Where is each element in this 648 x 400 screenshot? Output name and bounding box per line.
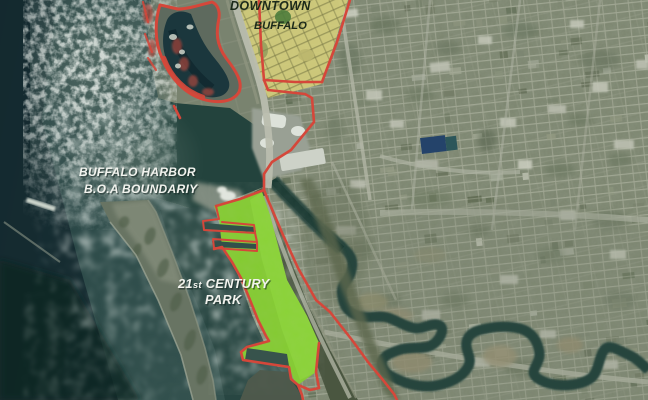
svg-text:B.O.A BOUNDARIY: B.O.A BOUNDARIY <box>84 182 198 196</box>
svg-text:BUFFALO HARBOR: BUFFALO HARBOR <box>79 165 196 179</box>
svg-text:DOWNTOWN: DOWNTOWN <box>230 0 311 13</box>
svg-text:BUFFALO: BUFFALO <box>254 20 307 32</box>
svg-text:PARK: PARK <box>205 292 243 307</box>
svg-text:21st CENTURY: 21st CENTURY <box>177 276 271 291</box>
